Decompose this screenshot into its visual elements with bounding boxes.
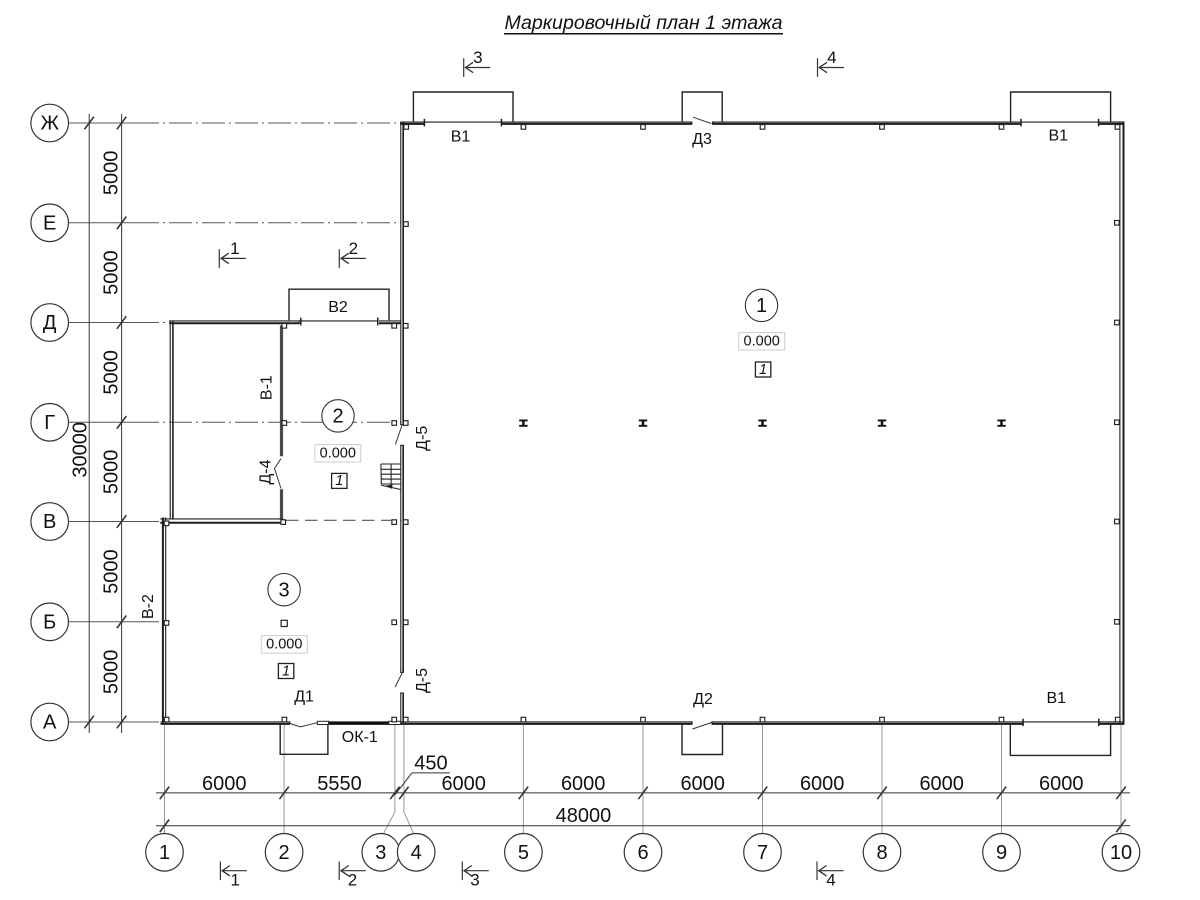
svg-text:1: 1 — [282, 663, 290, 679]
svg-text:6000: 6000 — [561, 773, 606, 795]
svg-text:5000: 5000 — [101, 151, 123, 196]
svg-text:В-1: В-1 — [259, 375, 276, 400]
svg-text:А: А — [43, 712, 57, 734]
svg-text:6000: 6000 — [1039, 773, 1084, 795]
svg-text:6000: 6000 — [441, 773, 486, 795]
svg-text:4: 4 — [826, 870, 835, 889]
svg-text:6000: 6000 — [680, 773, 725, 795]
svg-text:1: 1 — [756, 295, 767, 317]
svg-text:6000: 6000 — [800, 773, 845, 795]
svg-text:Д-4: Д-4 — [258, 459, 275, 484]
svg-text:6000: 6000 — [202, 773, 247, 795]
svg-text:Д1: Д1 — [294, 689, 314, 706]
svg-text:Е: Е — [43, 212, 56, 234]
svg-text:ОК-1: ОК-1 — [342, 729, 378, 746]
svg-text:2: 2 — [332, 406, 343, 428]
svg-text:48000: 48000 — [556, 805, 612, 827]
svg-text:Д: Д — [43, 312, 57, 334]
svg-text:9: 9 — [996, 842, 1007, 864]
svg-text:В1: В1 — [1047, 690, 1067, 707]
svg-text:2: 2 — [279, 842, 290, 864]
svg-text:1: 1 — [335, 473, 343, 489]
svg-text:5000: 5000 — [101, 350, 123, 395]
svg-text:8: 8 — [876, 842, 887, 864]
svg-text:1: 1 — [230, 870, 239, 889]
svg-text:0.000: 0.000 — [320, 445, 356, 461]
svg-text:1: 1 — [759, 362, 767, 378]
svg-text:Д3: Д3 — [692, 131, 712, 148]
svg-text:3: 3 — [279, 579, 290, 601]
svg-text:3: 3 — [375, 842, 386, 864]
svg-text:В1: В1 — [451, 129, 471, 146]
svg-text:4: 4 — [411, 842, 422, 864]
svg-text:7: 7 — [757, 842, 768, 864]
svg-text:Д-5: Д-5 — [414, 668, 431, 693]
svg-text:0.000: 0.000 — [266, 637, 302, 653]
svg-text:Маркировочный план 1 этажа: Маркировочный план 1 этажа — [504, 12, 782, 34]
svg-text:10: 10 — [1110, 842, 1132, 864]
svg-text:3: 3 — [473, 48, 482, 67]
svg-text:В1: В1 — [1049, 128, 1069, 145]
svg-text:5: 5 — [518, 842, 529, 864]
svg-text:5000: 5000 — [101, 549, 123, 594]
svg-text:5000: 5000 — [101, 250, 123, 295]
svg-text:Ж: Ж — [40, 113, 59, 135]
svg-text:Б: Б — [43, 611, 56, 633]
svg-text:5000: 5000 — [101, 450, 123, 495]
svg-text:В-2: В-2 — [140, 594, 157, 619]
svg-text:4: 4 — [827, 48, 836, 67]
svg-text:В: В — [43, 511, 56, 533]
svg-text:Д-5: Д-5 — [414, 426, 431, 451]
svg-text:0.000: 0.000 — [744, 333, 780, 349]
svg-text:2: 2 — [348, 870, 357, 889]
svg-text:Г: Г — [44, 412, 55, 434]
svg-text:6: 6 — [637, 842, 648, 864]
svg-text:3: 3 — [470, 870, 479, 889]
svg-text:450: 450 — [414, 752, 447, 774]
svg-text:30000: 30000 — [69, 422, 91, 478]
svg-text:2: 2 — [349, 239, 358, 258]
svg-text:Д2: Д2 — [693, 691, 713, 708]
svg-text:1: 1 — [230, 239, 239, 258]
svg-text:В2: В2 — [328, 299, 348, 316]
svg-text:1: 1 — [159, 842, 170, 864]
svg-text:6000: 6000 — [919, 773, 964, 795]
svg-text:5550: 5550 — [317, 773, 362, 795]
svg-text:5000: 5000 — [101, 650, 123, 695]
